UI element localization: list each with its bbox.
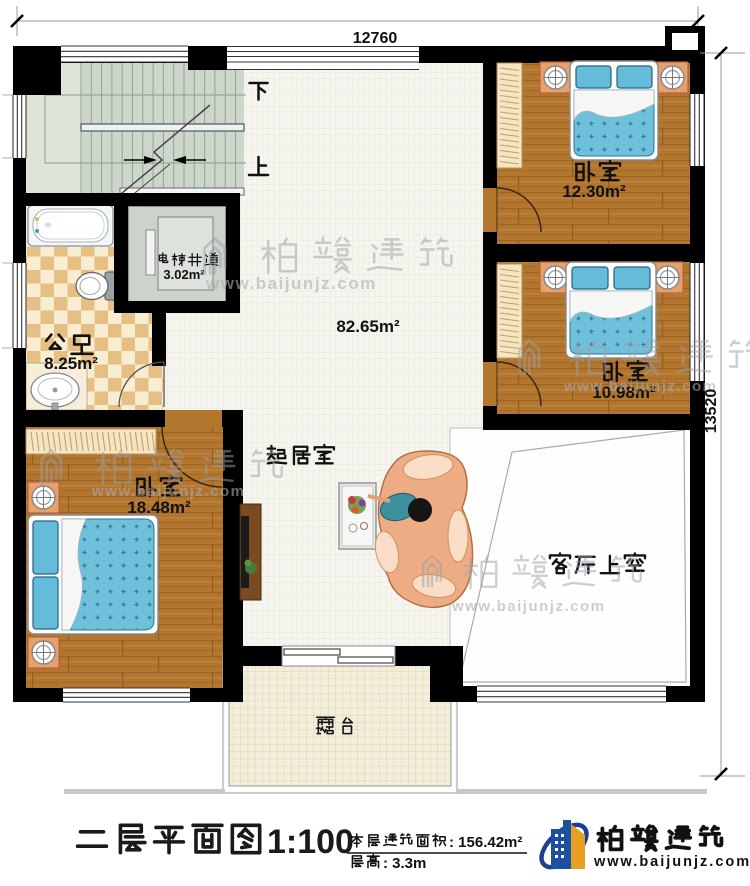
svg-text:8.25m²: 8.25m² — [44, 354, 98, 373]
svg-text:www.baijunjz.com: www.baijunjz.com — [91, 483, 245, 500]
svg-text:www.baijunjz.com: www.baijunjz.com — [563, 378, 717, 395]
svg-text:1:100: 1:100 — [267, 823, 354, 861]
svg-text:13520: 13520 — [703, 389, 720, 434]
svg-text:18.48m²: 18.48m² — [127, 498, 191, 517]
svg-text:: 156.42m²: : 156.42m² — [449, 834, 522, 851]
svg-text:www.baijunjz.com: www.baijunjz.com — [205, 274, 377, 293]
svg-text:82.65m²: 82.65m² — [336, 317, 400, 336]
svg-text:: 3.3m: : 3.3m — [383, 855, 426, 872]
svg-text:www.baijunjz.com: www.baijunjz.com — [593, 854, 750, 870]
svg-text:www.baijunjz.com: www.baijunjz.com — [451, 598, 605, 615]
svg-text:3.02m²: 3.02m² — [163, 267, 205, 282]
svg-text:12760: 12760 — [353, 30, 398, 47]
svg-text:12.30m²: 12.30m² — [562, 182, 626, 201]
